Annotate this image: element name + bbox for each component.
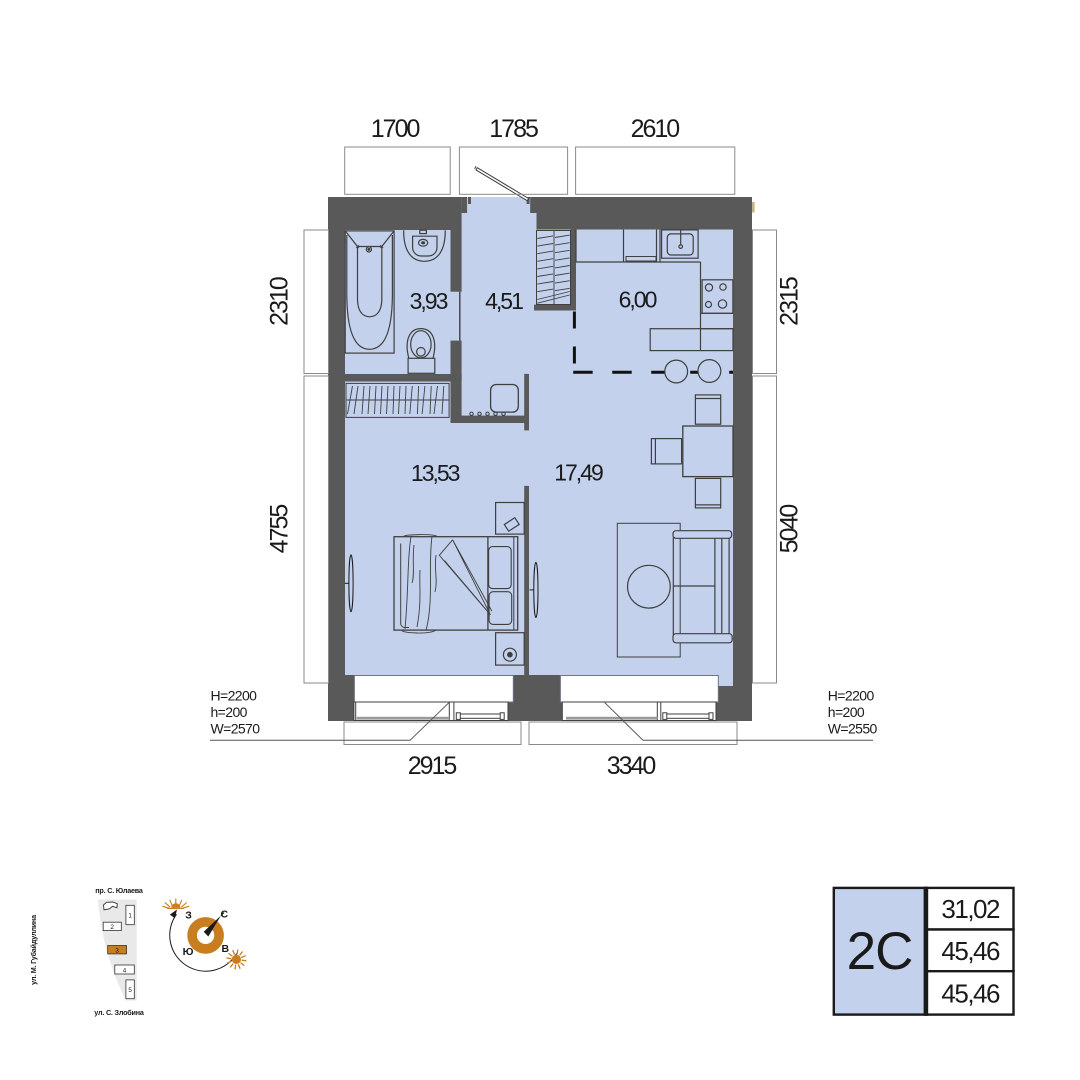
- svg-text:W=2550: W=2550: [828, 721, 878, 737]
- svg-text:З: З: [185, 909, 192, 921]
- svg-text:1785: 1785: [489, 115, 538, 143]
- svg-text:3,93: 3,93: [410, 288, 448, 314]
- svg-text:3: 3: [115, 948, 119, 955]
- svg-text:4: 4: [123, 967, 127, 974]
- svg-text:6,00: 6,00: [619, 287, 657, 313]
- svg-text:ул. М. Губайдуллина: ул. М. Губайдуллина: [29, 914, 38, 985]
- svg-text:4,51: 4,51: [485, 288, 523, 314]
- svg-text:H=2200: H=2200: [211, 688, 258, 704]
- svg-text:45,46: 45,46: [941, 936, 1000, 966]
- svg-text:13,53: 13,53: [411, 460, 460, 486]
- svg-text:2610: 2610: [631, 115, 680, 143]
- svg-text:пр. С. Юлаева: пр. С. Юлаева: [95, 886, 144, 895]
- svg-text:3340: 3340: [607, 752, 656, 780]
- svg-text:H=2200: H=2200: [828, 688, 875, 704]
- svg-text:Ю: Ю: [183, 946, 194, 958]
- svg-text:31,02: 31,02: [941, 894, 1000, 924]
- svg-text:ул. С. Злобина: ул. С. Злобина: [94, 1008, 145, 1017]
- svg-text:1: 1: [128, 913, 132, 920]
- svg-text:h=200: h=200: [211, 704, 248, 720]
- svg-text:1700: 1700: [371, 115, 420, 143]
- svg-text:4755: 4755: [266, 505, 294, 554]
- svg-text:2915: 2915: [408, 752, 457, 780]
- svg-text:В: В: [222, 943, 230, 955]
- svg-text:W=2570: W=2570: [211, 721, 261, 737]
- svg-text:17,49: 17,49: [554, 460, 603, 486]
- svg-text:45,46: 45,46: [941, 978, 1000, 1008]
- svg-text:5: 5: [128, 987, 132, 994]
- svg-text:h=200: h=200: [828, 704, 865, 720]
- svg-text:2315: 2315: [776, 277, 804, 326]
- svg-text:2310: 2310: [266, 277, 294, 326]
- svg-text:2С: 2С: [847, 922, 913, 981]
- svg-text:С: С: [221, 908, 229, 920]
- svg-text:2: 2: [110, 924, 114, 931]
- svg-text:5040: 5040: [776, 505, 804, 554]
